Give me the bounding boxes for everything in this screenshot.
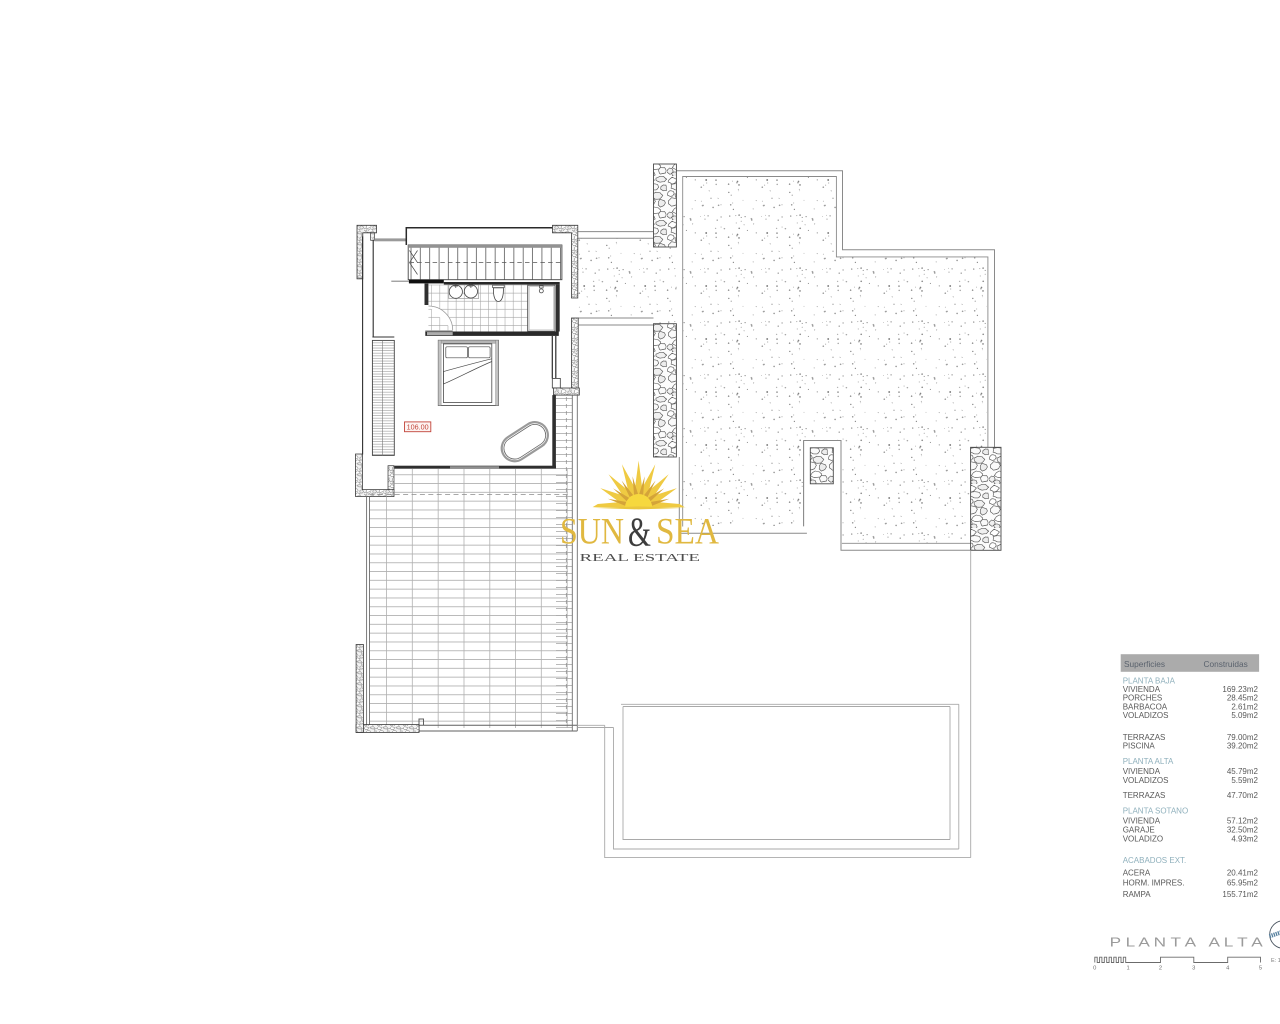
- svg-text:28.45m2: 28.45m2: [1227, 694, 1259, 703]
- svg-text:VOLADIZOS: VOLADIZOS: [1123, 711, 1169, 720]
- svg-text:155.71m2: 155.71m2: [1222, 890, 1258, 899]
- svg-text:Construidas: Construidas: [1204, 659, 1248, 669]
- svg-text:ACABADOS EXT.: ACABADOS EXT.: [1123, 856, 1187, 865]
- svg-text:P L A N T A A L T A: P L A N T A A L T A: [1110, 936, 1264, 950]
- svg-text:REAL ESTATE: REAL ESTATE: [580, 553, 701, 564]
- svg-text:GARAJE: GARAJE: [1123, 825, 1155, 834]
- svg-text:&: &: [628, 509, 651, 555]
- svg-text:VOLADIZOS: VOLADIZOS: [1123, 776, 1169, 785]
- svg-text:PORCHES: PORCHES: [1123, 694, 1163, 703]
- svg-text:Superficies: Superficies: [1124, 659, 1165, 669]
- svg-text:TERRAZAS: TERRAZAS: [1123, 733, 1166, 742]
- svg-text:E: 1: E: 1: [1271, 958, 1280, 964]
- svg-text:2: 2: [1159, 966, 1162, 972]
- svg-text:2.61m2: 2.61m2: [1231, 702, 1258, 711]
- svg-text:PLANTA ALTA: PLANTA ALTA: [1123, 757, 1174, 766]
- svg-text:PLANTA SOTANO: PLANTA SOTANO: [1123, 806, 1189, 815]
- svg-text:BARBACOA: BARBACOA: [1123, 702, 1168, 711]
- svg-text:ACERA: ACERA: [1123, 869, 1151, 878]
- svg-text:PISCINA: PISCINA: [1123, 742, 1156, 751]
- svg-text:VIVIENDA: VIVIENDA: [1123, 767, 1161, 776]
- svg-text:VOLADIZO: VOLADIZO: [1123, 834, 1163, 843]
- svg-text:106.00: 106.00: [407, 422, 429, 431]
- svg-text:4.93m2: 4.93m2: [1231, 834, 1258, 843]
- svg-text:1: 1: [1126, 966, 1129, 972]
- svg-text:3: 3: [1192, 966, 1195, 972]
- svg-text:HORM. IMPRES.: HORM. IMPRES.: [1123, 879, 1185, 888]
- svg-text:SEA: SEA: [656, 512, 719, 553]
- svg-text:TERRAZAS: TERRAZAS: [1123, 791, 1166, 800]
- svg-text:RAMPA: RAMPA: [1123, 890, 1152, 899]
- svg-text:57.12m2: 57.12m2: [1227, 817, 1259, 826]
- svg-text:5.59m2: 5.59m2: [1231, 776, 1258, 785]
- svg-text:32.50m2: 32.50m2: [1227, 825, 1259, 834]
- svg-text:65.95m2: 65.95m2: [1227, 879, 1259, 888]
- svg-text:5: 5: [1259, 966, 1262, 972]
- svg-text:47.70m2: 47.70m2: [1227, 791, 1259, 800]
- svg-text:VIVIENDA: VIVIENDA: [1123, 817, 1161, 826]
- svg-text:45.79m2: 45.79m2: [1227, 767, 1259, 776]
- svg-text:79.00m2: 79.00m2: [1227, 733, 1259, 742]
- svg-text:20.41m2: 20.41m2: [1227, 869, 1259, 878]
- svg-text:SUN: SUN: [560, 512, 624, 553]
- svg-text:VIVIENDA: VIVIENDA: [1123, 685, 1161, 694]
- svg-text:169.23m2: 169.23m2: [1222, 685, 1258, 694]
- svg-text:0: 0: [1093, 966, 1096, 972]
- svg-text:39.20m2: 39.20m2: [1227, 742, 1259, 751]
- svg-text:5.09m2: 5.09m2: [1231, 711, 1258, 720]
